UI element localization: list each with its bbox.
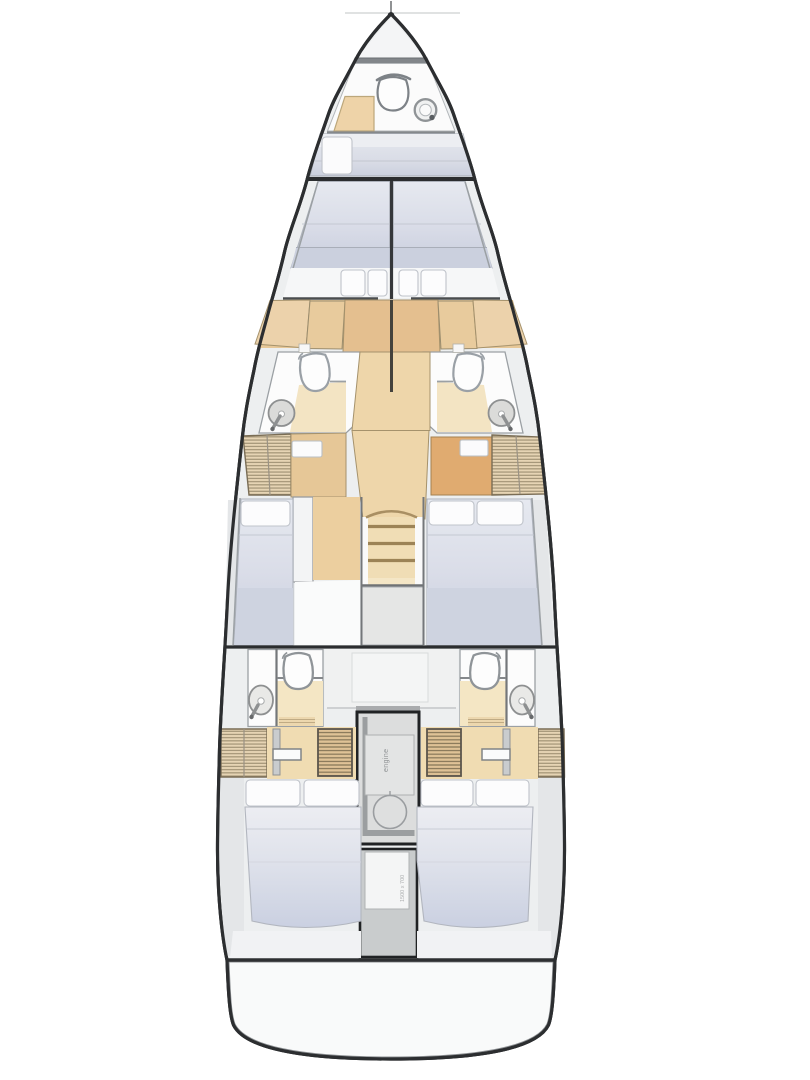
svg-text:engine: engine	[383, 749, 390, 772]
svg-text:1500 x 700: 1500 x 700	[400, 875, 406, 902]
